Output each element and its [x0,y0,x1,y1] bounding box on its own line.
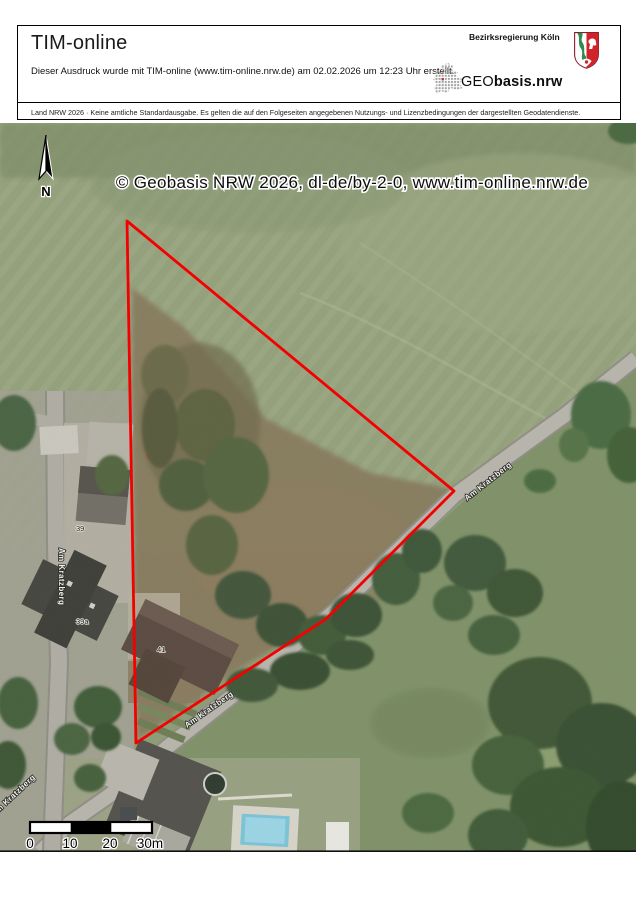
scale-tick-label: 30m [137,836,163,851]
house-number: 41 [157,645,165,654]
nrw-coat-of-arms-icon [574,32,599,69]
map-bottom-border [0,850,636,852]
header-panel: TIM-online Dieser Ausdruck wurde mit TIM… [17,25,621,120]
license-disclaimer: Land NRW 2026 · Keine amtliche Standarda… [31,108,616,117]
copyright-overlay: © Geobasis NRW 2026, dl-de/by-2-0, www.t… [116,173,588,192]
geobasis-logo-text: GEObasis.nrw [461,74,563,90]
aerial-map: Am Kratzberg Am Kratzberg Am Kratzberg A… [0,123,636,852]
logo-red-dot [442,78,444,80]
road-label: Am Kratzberg [57,548,66,605]
scale-tick-label: 0 [26,836,34,851]
print-preview-page: TIM-online Dieser Ausdruck wurde mit TIM… [0,0,636,900]
scale-tick-label: 20 [102,836,117,851]
house-number: 39a [76,617,89,626]
map-viewport: Am Kratzberg Am Kratzberg Am Kratzberg A… [0,123,636,852]
geobasis-logo: GEObasis.nrw [432,62,592,100]
print-created-text: Dieser Ausdruck wurde mit TIM-online (ww… [31,66,461,79]
agency-label: Bezirksregierung Köln [469,32,560,42]
app-title: TIM-online [31,32,127,55]
header-divider [18,102,620,103]
house-number: 39 [76,524,84,533]
north-label: N [41,184,50,199]
scale-tick-label: 10 [62,836,77,851]
aerial-imagery [0,123,636,852]
